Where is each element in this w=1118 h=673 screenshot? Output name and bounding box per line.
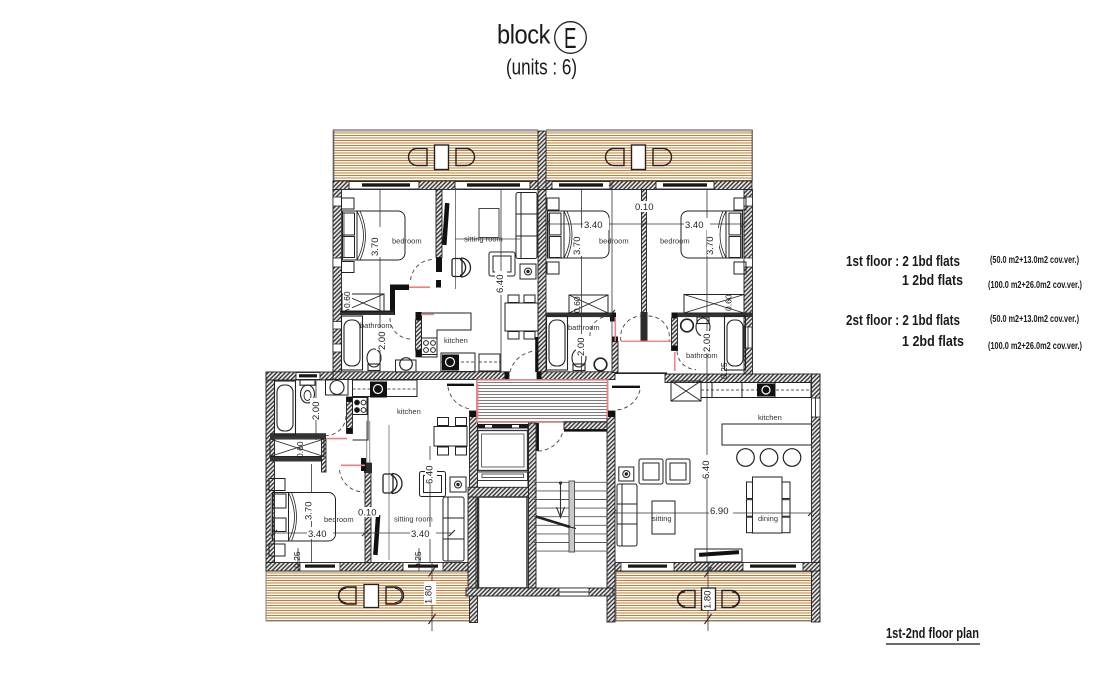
- svg-text:kitchen: kitchen: [397, 407, 421, 416]
- svg-text:bedroom: bedroom: [660, 237, 690, 246]
- svg-text:0.25: 0.25: [413, 551, 423, 568]
- svg-text:dining: dining: [758, 514, 778, 523]
- svg-text:3.70: 3.70: [304, 502, 315, 521]
- svg-text:(50.0 m2+13.0m2 cov.ver.): (50.0 m2+13.0m2 cov.ver.): [990, 314, 1079, 325]
- svg-text:2.00: 2.00: [576, 338, 587, 357]
- svg-text:6.90: 6.90: [710, 506, 729, 517]
- svg-text:0.25: 0.25: [292, 551, 302, 568]
- svg-text:(100.0 m2+26.0m2 cov.ver.): (100.0 m2+26.0m2 cov.ver.): [988, 341, 1082, 352]
- svg-text:3.70: 3.70: [370, 238, 381, 257]
- svg-text:3.40: 3.40: [584, 220, 603, 231]
- svg-text:0.10: 0.10: [358, 508, 377, 519]
- svg-text:1 2bd flats: 1 2bd flats: [902, 273, 963, 289]
- svg-text:6.40: 6.40: [425, 466, 436, 485]
- svg-text:2.00: 2.00: [311, 402, 322, 421]
- svg-text:2.00: 2.00: [377, 332, 388, 351]
- svg-text:bathroom: bathroom: [686, 351, 718, 360]
- svg-text:6.40: 6.40: [495, 275, 506, 294]
- svg-text:1.80: 1.80: [424, 586, 435, 605]
- svg-text:6.40: 6.40: [701, 461, 712, 480]
- svg-text:2st floor : 2 1bd flats: 2st floor : 2 1bd flats: [846, 313, 960, 329]
- svg-text:3.40: 3.40: [685, 220, 704, 231]
- svg-text:0.60: 0.60: [342, 291, 352, 308]
- svg-text:1.80: 1.80: [703, 591, 714, 610]
- svg-text:0.60: 0.60: [724, 294, 734, 311]
- svg-text:2.00: 2.00: [702, 334, 713, 353]
- svg-text:0.10: 0.10: [635, 202, 654, 213]
- svg-text:bathroom: bathroom: [568, 323, 600, 332]
- svg-text:kitchen: kitchen: [758, 413, 782, 422]
- svg-text:bedroom: bedroom: [392, 237, 422, 246]
- svg-text:1st floor : 2 1bd flats: 1st floor : 2 1bd flats: [846, 254, 960, 270]
- svg-text:0.25: 0.25: [719, 362, 729, 379]
- svg-text:3.70: 3.70: [705, 237, 716, 256]
- svg-text:0.60: 0.60: [295, 441, 305, 458]
- svg-text:E: E: [564, 23, 577, 55]
- svg-text:sitting room: sitting room: [464, 235, 503, 244]
- svg-text:bedroom: bedroom: [324, 515, 354, 524]
- svg-text:3.40: 3.40: [411, 529, 430, 540]
- svg-text:sitting room: sitting room: [394, 515, 433, 524]
- svg-text:kitchen: kitchen: [444, 336, 468, 345]
- svg-text:1 2bd flats: 1 2bd flats: [902, 334, 964, 350]
- svg-text:sitting: sitting: [652, 514, 672, 523]
- svg-text:bedroom: bedroom: [599, 237, 629, 246]
- svg-text:(100.0 m2+26.0m2 cov.ver.): (100.0 m2+26.0m2 cov.ver.): [988, 280, 1082, 291]
- svg-text:3.40: 3.40: [308, 529, 327, 540]
- svg-text:bathroom: bathroom: [360, 321, 392, 330]
- svg-text:(50.0 m2+13.0m2 cov.ver.): (50.0 m2+13.0m2 cov.ver.): [990, 255, 1079, 266]
- svg-text:1st-2nd floor plan: 1st-2nd floor plan: [886, 626, 979, 642]
- svg-text:block: block: [497, 20, 551, 50]
- svg-text:(units : 6): (units : 6): [506, 55, 577, 80]
- svg-text:3.70: 3.70: [572, 237, 583, 256]
- svg-text:0.60: 0.60: [572, 296, 582, 313]
